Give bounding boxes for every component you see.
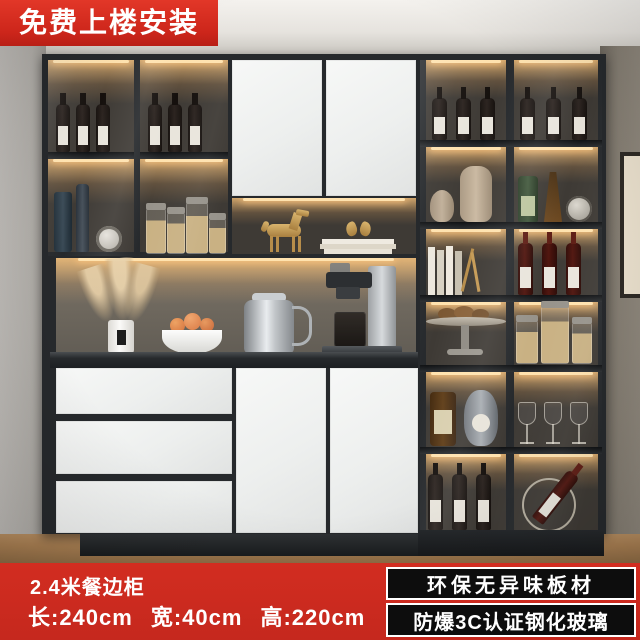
- ceramic-pitcher: [460, 166, 492, 222]
- drawer: [56, 421, 232, 474]
- spirit-bottle: [76, 184, 89, 252]
- wine-bottle: [480, 98, 495, 140]
- horse-leg: [298, 236, 301, 252]
- book-spine: [437, 250, 444, 295]
- product-dimensions: 长:240cm 宽:40cm 高:220cm: [28, 600, 365, 632]
- product-title: 2.4米餐边柜: [30, 571, 145, 600]
- feature-box-material: 环保无异味板材: [386, 567, 636, 600]
- dimension-width: 宽:40cm: [151, 600, 243, 632]
- wine-bottle: [476, 474, 491, 530]
- shelf-board: [420, 295, 602, 302]
- wine-bottle: [546, 98, 561, 140]
- wine-glass: [518, 402, 536, 446]
- wine-bottle: [428, 474, 443, 530]
- vase-label: [117, 330, 126, 345]
- wine-bottle: [168, 104, 182, 152]
- wall-picture: [620, 152, 640, 298]
- shelf-board: [420, 140, 602, 147]
- shelf-board: [140, 152, 228, 159]
- wine-glass: [570, 402, 588, 446]
- horse-statue: [258, 208, 314, 254]
- countertop: [50, 352, 418, 368]
- storage-jar: [572, 322, 592, 364]
- kettle-handle: [292, 306, 312, 346]
- shelf-board: [48, 152, 134, 159]
- storage-jar: [146, 208, 166, 254]
- fruit: [184, 313, 201, 330]
- wine-bottle: [572, 98, 587, 140]
- book-spine: [428, 247, 435, 295]
- upper-door: [232, 60, 322, 196]
- flask-label: [472, 414, 490, 432]
- wine-bottle: [432, 98, 447, 140]
- red-wine-bottle: [566, 243, 581, 295]
- free-install-banner: 免费上楼安装: [0, 0, 218, 46]
- medal-ornament: [96, 226, 122, 252]
- wine-bottle: [56, 104, 70, 152]
- dimension-length: 长:240cm: [28, 600, 133, 632]
- product-image: 免费上楼安装 2.4米餐边柜 长:240cm 宽:40cm 高:220cm 环保…: [0, 0, 640, 640]
- wine-bottle: [452, 474, 467, 530]
- feature-glass-label: 防爆3C认证钢化玻璃: [413, 606, 609, 635]
- wine-bottle: [76, 104, 90, 152]
- drawer: [56, 368, 232, 414]
- kettle: [244, 300, 294, 354]
- red-wine-bottle: [542, 243, 557, 295]
- left-wall: [0, 46, 46, 542]
- tray-base: [447, 349, 483, 355]
- horse-leg: [276, 236, 279, 252]
- spirit-bottle: [54, 192, 72, 252]
- butterfly-ornament: [346, 220, 372, 238]
- wine-bottle: [148, 104, 162, 152]
- book-spine: [446, 246, 453, 295]
- coffee-maker-head: [326, 272, 372, 288]
- storage-jar: [541, 306, 569, 364]
- coffee-carafe: [334, 312, 366, 350]
- horse-leg: [270, 236, 273, 252]
- shelf-board: [420, 447, 602, 454]
- whiskey-label: [434, 410, 452, 434]
- shelf-board: [420, 365, 602, 372]
- wine-glass: [544, 402, 562, 446]
- storage-jar: [516, 320, 538, 364]
- butterfly-wing: [358, 220, 373, 237]
- butterfly-wing: [344, 220, 359, 237]
- right-cabinet-base: [418, 530, 604, 556]
- book-stack: [320, 239, 396, 254]
- upper-door: [326, 60, 416, 196]
- coffee-maker-tower: [368, 266, 396, 348]
- red-wine-bottle: [518, 243, 533, 295]
- storage-jar: [209, 218, 226, 254]
- horse-leg: [292, 236, 295, 252]
- dimension-height: 高:220cm: [260, 600, 365, 632]
- lower-door: [330, 368, 418, 533]
- shelf-board: [420, 222, 602, 229]
- gin-bottle-label: [521, 196, 535, 216]
- wine-bottle: [96, 104, 110, 152]
- lower-door: [236, 368, 326, 533]
- bottom-info-banner: 2.4米餐边柜 长:240cm 宽:40cm 高:220cm 环保无异味板材 防…: [0, 563, 640, 640]
- feature-material-label: 环保无异味板材: [427, 569, 595, 598]
- free-install-label: 免费上楼安装: [19, 7, 199, 38]
- drawer: [56, 481, 232, 533]
- wine-bottle: [456, 98, 471, 140]
- tray-stem: [461, 325, 469, 349]
- storage-jar: [186, 202, 208, 254]
- coffee-maker-funnel: [336, 287, 360, 299]
- coaster-ornament: [566, 196, 592, 222]
- feature-box-glass: 防爆3C认证钢化玻璃: [386, 603, 636, 637]
- wine-bottle: [520, 98, 535, 140]
- storage-jar: [167, 212, 185, 254]
- ceramic-vase: [430, 190, 454, 222]
- wine-bottle: [188, 104, 202, 152]
- book: [324, 249, 392, 254]
